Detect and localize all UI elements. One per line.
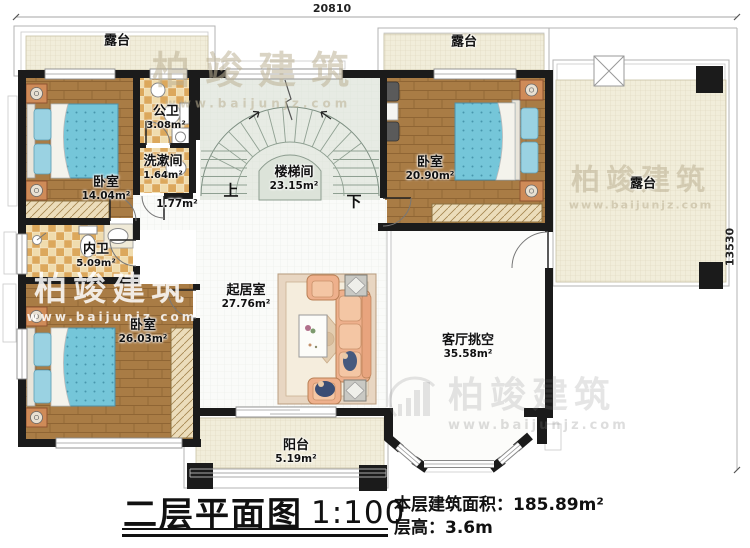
room-label-stairwell: 楼梯间 23.15m² [270, 166, 319, 192]
side-table [344, 380, 366, 401]
window [17, 234, 27, 274]
stair-down-label: 下 [346, 191, 361, 212]
window [226, 69, 342, 79]
plan-info: 本层建筑面积：185.89m² 层高：3.6m [394, 494, 604, 540]
coffee-table [299, 315, 327, 357]
floor-void [392, 230, 546, 415]
column [696, 66, 723, 93]
room-label-bedroom-1: 卧室 14.04m² [82, 176, 131, 202]
room-label-bedroom-3: 卧室 26.03m² [119, 319, 168, 345]
room-label-public-bath: 公卫 3.08m² [146, 105, 185, 131]
floor-plan-drawing [0, 0, 750, 548]
window [17, 329, 27, 379]
room-label-terrace-top-left: 露台 [104, 35, 130, 50]
floor-plan-canvas: 柏竣建筑 www.baijunjz.com 柏竣建筑 www.baijunjz.… [0, 0, 750, 548]
room-label-living-room: 起居室 27.76m² [222, 284, 271, 310]
plan-height-line: 层高：3.6m [394, 517, 604, 540]
window [434, 69, 516, 79]
wardrobe-bedroom-2 [432, 204, 542, 222]
sink-public-bath [151, 83, 165, 97]
window [45, 69, 115, 79]
room-label-void: 客厅挑空 35.58m² [442, 334, 494, 360]
room-label-hallway: 1.77m² [156, 199, 197, 211]
column [699, 262, 723, 289]
balcony-door [236, 407, 336, 417]
window [56, 438, 182, 448]
room-label-terrace-top-right: 露台 [451, 36, 477, 51]
plan-area-line: 本层建筑面积：185.89m² [394, 494, 604, 517]
wardrobe-bedroom-1 [25, 201, 109, 220]
room-label-washroom: 洗漱间 1.64m² [143, 155, 182, 181]
room-label-terrace-right: 露台 [630, 178, 656, 193]
side-table [345, 275, 367, 296]
plan-scale: 1:100 [311, 495, 405, 531]
room-label-bedroom-2: 卧室 20.90m² [406, 156, 455, 182]
armchair [307, 275, 339, 300]
room-label-inner-bath: 内卫 5.09m² [76, 243, 115, 269]
balcony-railing [190, 469, 386, 477]
dimension-right: 13530 [724, 228, 737, 266]
room-label-balcony: 阳台 5.19m² [275, 439, 316, 465]
window [150, 69, 187, 79]
stair-up-label: 上 [223, 180, 238, 201]
column [187, 463, 213, 489]
wardrobe-bedroom-3 [171, 328, 195, 438]
dimension-top: 20810 [313, 2, 351, 15]
column-marker [594, 56, 624, 86]
living-room-set [278, 274, 376, 404]
